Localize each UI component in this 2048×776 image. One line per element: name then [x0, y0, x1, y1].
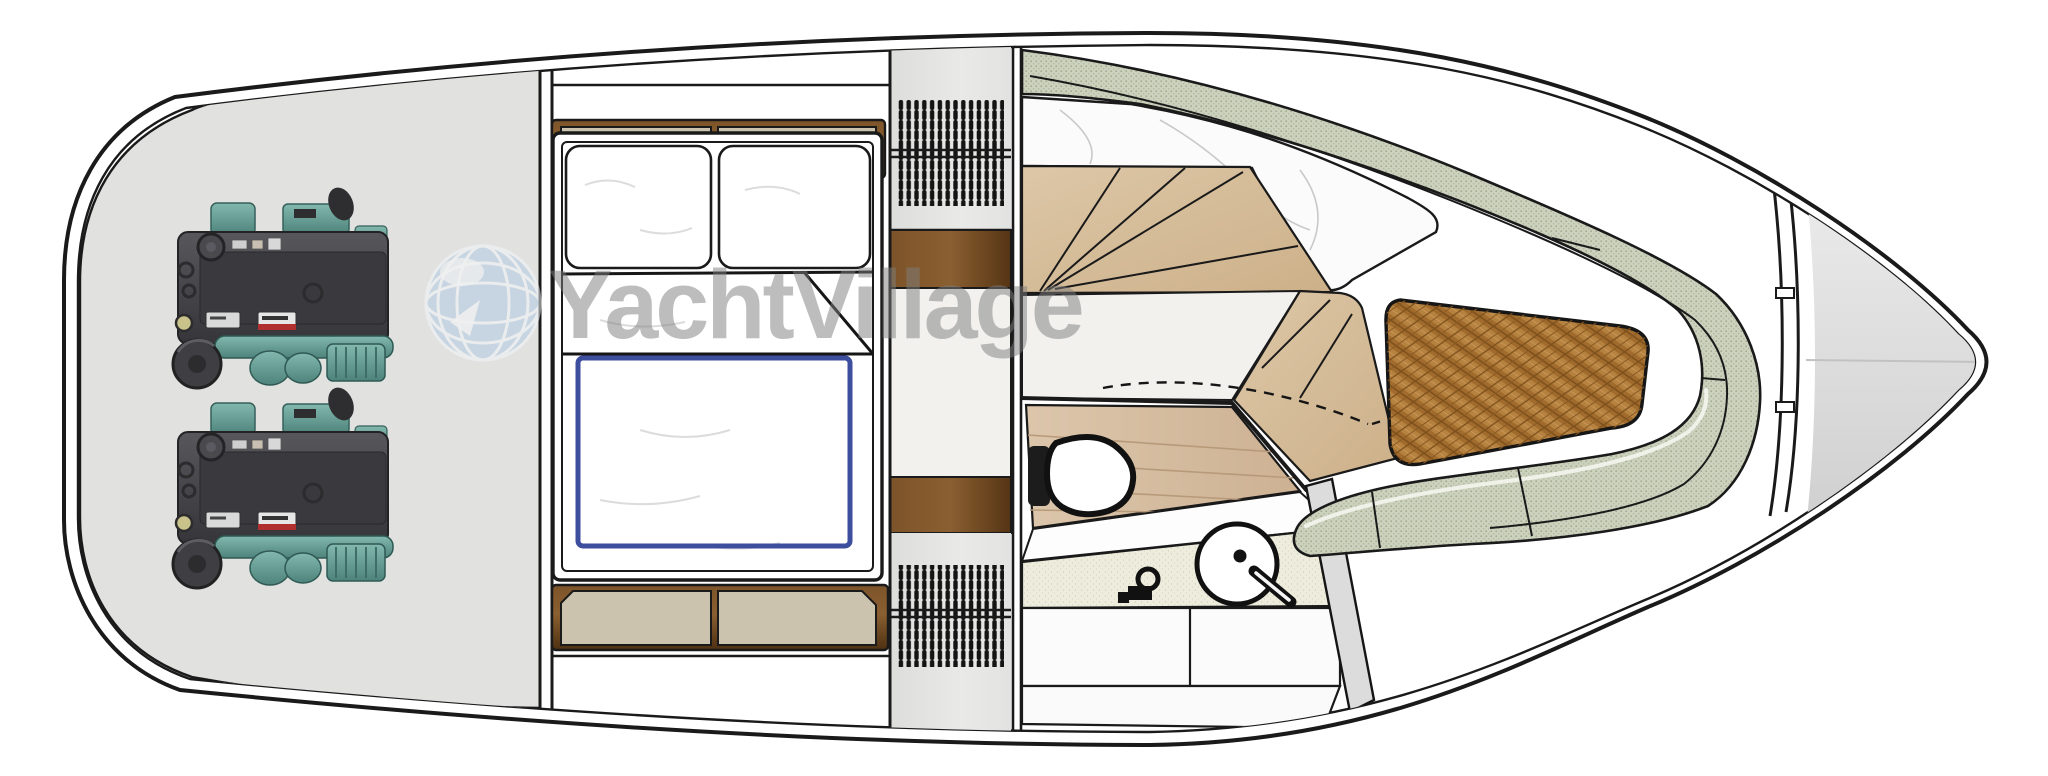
globe-icon — [426, 246, 540, 360]
toilet — [1028, 437, 1133, 514]
owners-cabin — [552, 85, 890, 656]
wardrobe-cabinet-bottom — [552, 585, 888, 650]
foredeck — [1806, 186, 1990, 528]
corridor — [890, 40, 1021, 733]
watermark-text: YachtVillage — [548, 250, 1082, 359]
watermark: YachtVillage — [426, 246, 1082, 360]
yacht-floorplan-page: YachtVillage — [0, 0, 2048, 776]
teak-step-lower — [890, 477, 1011, 533]
yacht-floorplan: YachtVillage — [0, 0, 2048, 776]
vanity-cabinets — [1022, 608, 1340, 728]
engine-room — [80, 62, 540, 708]
